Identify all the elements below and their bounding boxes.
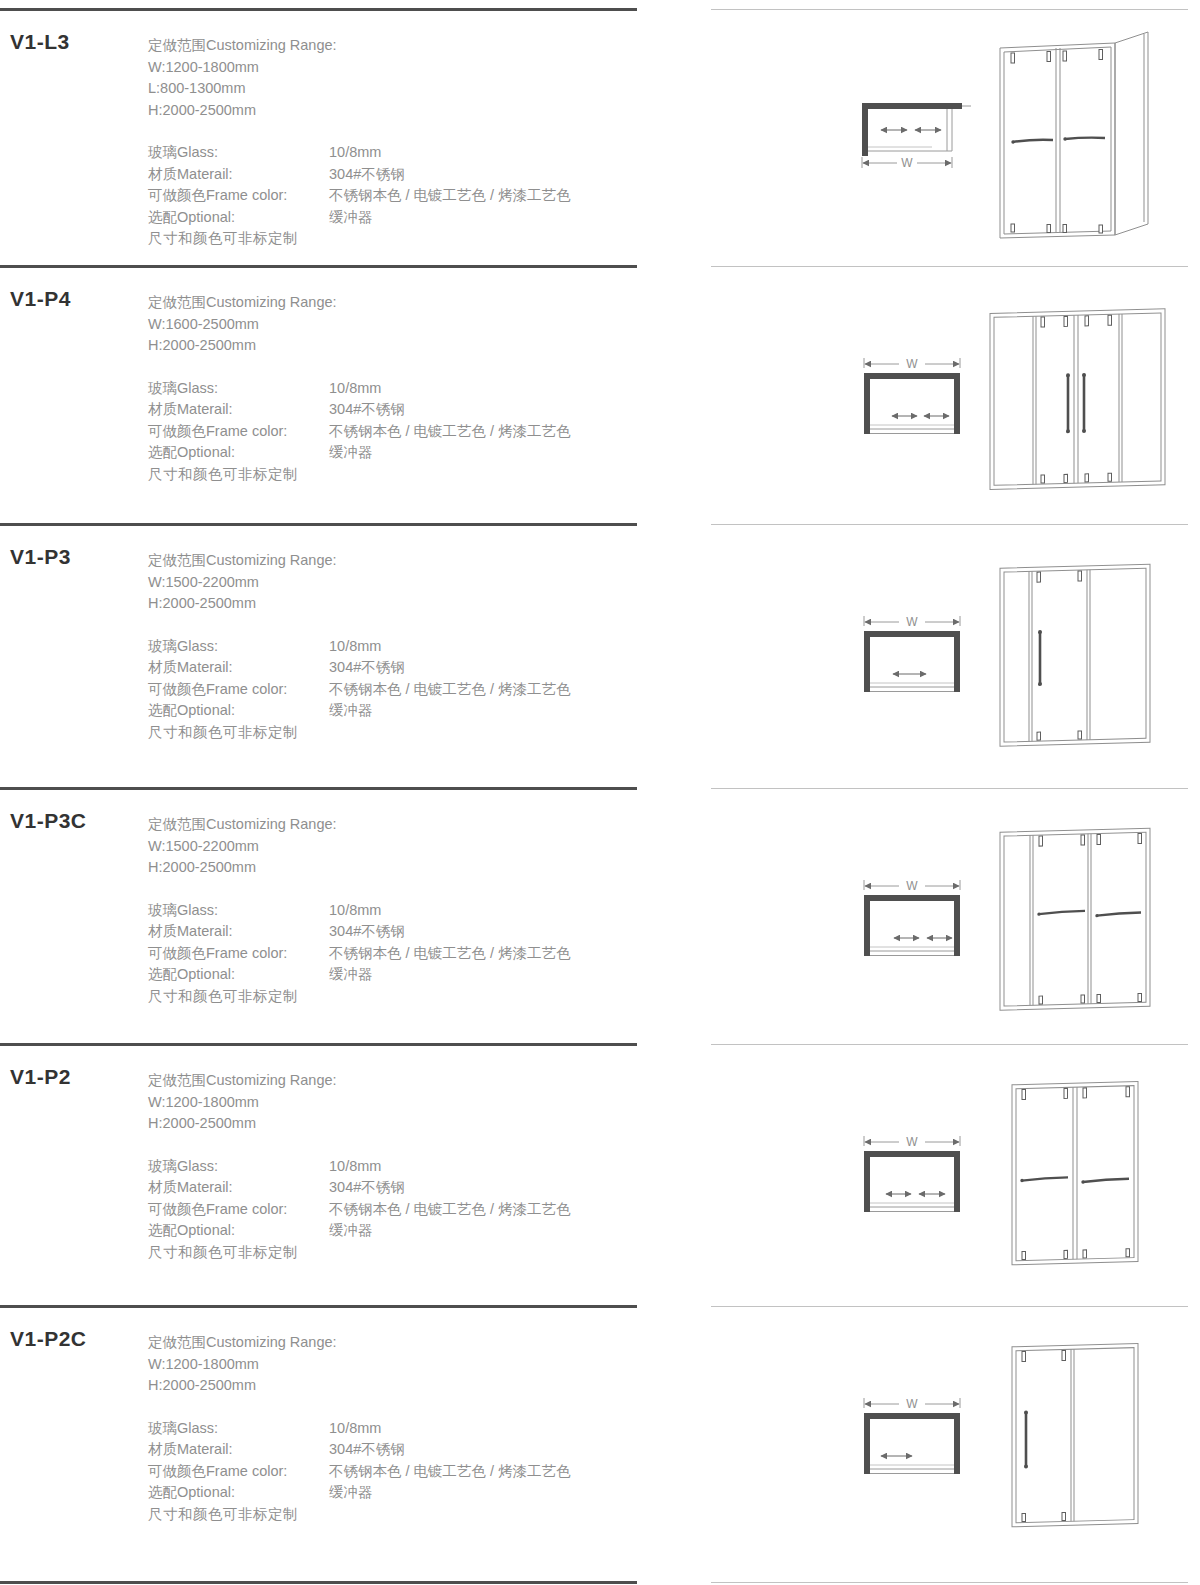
product-section-v1-l3: V1-L3 定做范围Customizing Range: W:1200-1800…: [0, 8, 1200, 265]
technical-drawing: W: [700, 265, 1200, 522]
technical-drawing: W: [700, 8, 1200, 265]
range-line: H:2000-2500mm: [148, 100, 571, 122]
plan-width-label: W: [901, 156, 913, 170]
spec-label: 材质Materail:: [148, 657, 329, 679]
product-section-v1-p3: V1-P3 定做范围Customizing Range: W:1500-2200…: [0, 523, 1200, 787]
spec-label: 可做颜色Frame color:: [148, 943, 329, 965]
range-title: 定做范围Customizing Range:: [148, 550, 571, 572]
spec-value: 缓冲器: [329, 1482, 373, 1504]
range-line: H:2000-2500mm: [148, 335, 571, 357]
door-handles: [1038, 630, 1042, 686]
spec-value: 缓冲器: [329, 1220, 373, 1242]
spec-row: 选配Optional:缓冲器: [148, 1220, 571, 1242]
section-divider-left: [0, 8, 637, 11]
range-title: 定做范围Customizing Range:: [148, 35, 571, 57]
range-line: W:1500-2200mm: [148, 836, 571, 858]
custom-note: 尺寸和颜色可非标定制: [148, 1504, 571, 1526]
front-view: [1000, 564, 1150, 746]
spec-row: 可做颜色Frame color:不锈钢本色 / 电镀工艺色 / 烤漆工艺色: [148, 943, 571, 965]
model-name: V1-P2C: [10, 1327, 87, 1351]
page-bottom-divider: [0, 1581, 1200, 1585]
model-name: V1-P3C: [10, 809, 87, 833]
spec-value: 10/8mm: [329, 1156, 381, 1178]
spec-row: 可做颜色Frame color:不锈钢本色 / 电镀工艺色 / 烤漆工艺色: [148, 1199, 571, 1221]
spec-row: 玻璃Glass:10/8mm: [148, 1156, 571, 1178]
spec-value: 缓冲器: [329, 700, 373, 722]
spec-list: 玻璃Glass:10/8mm 材质Materail:304#不锈钢 可做颜色Fr…: [148, 1156, 571, 1264]
plan-width-label: W: [906, 1135, 918, 1149]
plan-view: W: [864, 615, 960, 692]
spec-label: 玻璃Glass:: [148, 378, 329, 400]
spec-row: 材质Materail:304#不锈钢: [148, 657, 571, 679]
spec-row: 材质Materail:304#不锈钢: [148, 921, 571, 943]
range-title: 定做范围Customizing Range:: [148, 1070, 571, 1092]
spec-value: 10/8mm: [329, 142, 381, 164]
range-line: H:2000-2500mm: [148, 857, 571, 879]
model-name: V1-P4: [10, 287, 71, 311]
spec-label: 材质Materail:: [148, 1177, 329, 1199]
spec-label: 玻璃Glass:: [148, 636, 329, 658]
spec-row: 玻璃Glass:10/8mm: [148, 1418, 571, 1440]
range-title: 定做范围Customizing Range:: [148, 292, 571, 314]
front-view: [1000, 828, 1150, 1010]
drawing-v1-p2c: W: [700, 1305, 1200, 1562]
range-line: H:2000-2500mm: [148, 593, 571, 615]
spec-value: 缓冲器: [329, 207, 373, 229]
drawing-v1-p3: W: [700, 523, 1200, 780]
range-line: H:2000-2500mm: [148, 1375, 571, 1397]
technical-drawing: W: [700, 1043, 1200, 1300]
spec-label: 可做颜色Frame color:: [148, 185, 329, 207]
spec-list: 玻璃Glass:10/8mm 材质Materail:304#不锈钢 可做颜色Fr…: [148, 900, 571, 1008]
front-view: [1012, 1082, 1138, 1265]
spec-value: 304#不锈钢: [329, 399, 405, 421]
spec-row: 材质Materail:304#不锈钢: [148, 399, 571, 421]
spec-label: 可做颜色Frame color:: [148, 421, 329, 443]
spec-text-block: 定做范围Customizing Range: W:1500-2200mm H:2…: [148, 814, 571, 1007]
spec-row: 选配Optional:缓冲器: [148, 1482, 571, 1504]
door-handles: [1011, 137, 1105, 143]
spec-value: 不锈钢本色 / 电镀工艺色 / 烤漆工艺色: [329, 421, 571, 443]
spec-row: 材质Materail:304#不锈钢: [148, 1177, 571, 1199]
spec-value: 10/8mm: [329, 378, 381, 400]
spec-row: 玻璃Glass:10/8mm: [148, 142, 571, 164]
door-handles: [1020, 1176, 1129, 1186]
spec-label: 材质Materail:: [148, 164, 329, 186]
range-line: W:1200-1800mm: [148, 1092, 571, 1114]
model-name: V1-L3: [10, 30, 70, 54]
spec-row: 选配Optional:缓冲器: [148, 700, 571, 722]
spec-row: 玻璃Glass:10/8mm: [148, 900, 571, 922]
drawing-v1-p2: W: [700, 1043, 1200, 1300]
technical-drawing: W: [700, 523, 1200, 780]
section-divider-left: [0, 1043, 637, 1046]
drawing-v1-p4: W: [700, 265, 1200, 522]
spec-row: 可做颜色Frame color:不锈钢本色 / 电镀工艺色 / 烤漆工艺色: [148, 1461, 571, 1483]
spec-row: 材质Materail:304#不锈钢: [148, 164, 571, 186]
spec-value: 304#不锈钢: [329, 657, 405, 679]
plan-width-label: W: [906, 357, 918, 371]
range-line: W:1500-2200mm: [148, 572, 571, 594]
spec-row: 选配Optional:缓冲器: [148, 207, 571, 229]
roller-hooks: [1037, 571, 1082, 582]
front-view: [1000, 32, 1148, 238]
product-section-v1-p2c: V1-P2C 定做范围Customizing Range: W:1200-180…: [0, 1305, 1200, 1581]
spec-label: 玻璃Glass:: [148, 900, 329, 922]
range-line: L:800-1300mm: [148, 78, 571, 100]
spec-row: 可做颜色Frame color:不锈钢本色 / 电镀工艺色 / 烤漆工艺色: [148, 679, 571, 701]
plan-width-label: W: [906, 615, 918, 629]
technical-drawing: W: [700, 787, 1200, 1044]
range-line: W:1200-1800mm: [148, 57, 571, 79]
spec-label: 可做颜色Frame color:: [148, 1461, 329, 1483]
product-section-v1-p2: V1-P2 定做范围Customizing Range: W:1200-1800…: [0, 1043, 1200, 1305]
spec-value: 不锈钢本色 / 电镀工艺色 / 烤漆工艺色: [329, 1199, 571, 1221]
spec-label: 材质Materail:: [148, 921, 329, 943]
spec-label: 可做颜色Frame color:: [148, 1199, 329, 1221]
spec-row: 材质Materail:304#不锈钢: [148, 1439, 571, 1461]
spec-value: 10/8mm: [329, 900, 381, 922]
spec-value: 不锈钢本色 / 电镀工艺色 / 烤漆工艺色: [329, 679, 571, 701]
custom-note: 尺寸和颜色可非标定制: [148, 228, 571, 250]
range-line: W:1200-1800mm: [148, 1354, 571, 1376]
spec-text-block: 定做范围Customizing Range: W:1200-1800mm H:2…: [148, 1070, 571, 1263]
spec-label: 选配Optional:: [148, 964, 329, 986]
drawing-v1-p3c: W: [700, 787, 1200, 1044]
spec-row: 选配Optional:缓冲器: [148, 964, 571, 986]
spec-value: 缓冲器: [329, 964, 373, 986]
spec-value: 不锈钢本色 / 电镀工艺色 / 烤漆工艺色: [329, 943, 571, 965]
spec-label: 材质Materail:: [148, 1439, 329, 1461]
plan-width-label: W: [906, 879, 918, 893]
spec-label: 材质Materail:: [148, 399, 329, 421]
custom-note: 尺寸和颜色可非标定制: [148, 1242, 571, 1264]
bottom-guides: [1041, 473, 1112, 483]
spec-text-block: 定做范围Customizing Range: W:1500-2200mm H:2…: [148, 550, 571, 743]
spec-label: 可做颜色Frame color:: [148, 679, 329, 701]
spec-row: 可做颜色Frame color:不锈钢本色 / 电镀工艺色 / 烤漆工艺色: [148, 421, 571, 443]
spec-value: 304#不锈钢: [329, 1439, 405, 1461]
bottom-guides: [1022, 1512, 1066, 1521]
spec-value: 304#不锈钢: [329, 164, 405, 186]
spec-row: 玻璃Glass:10/8mm: [148, 636, 571, 658]
spec-label: 选配Optional:: [148, 1220, 329, 1242]
range-line: W:1600-2500mm: [148, 314, 571, 336]
spec-value: 不锈钢本色 / 电镀工艺色 / 烤漆工艺色: [329, 1461, 571, 1483]
door-handles: [1024, 1410, 1028, 1468]
spec-label: 玻璃Glass:: [148, 1156, 329, 1178]
spec-value: 304#不锈钢: [329, 1177, 405, 1199]
spec-value: 缓冲器: [329, 442, 373, 464]
spec-label: 选配Optional:: [148, 207, 329, 229]
product-section-v1-p4: V1-P4 定做范围Customizing Range: W:1600-2500…: [0, 265, 1200, 523]
range-title: 定做范围Customizing Range:: [148, 814, 571, 836]
spec-list: 玻璃Glass:10/8mm 材质Materail:304#不锈钢 可做颜色Fr…: [148, 142, 571, 250]
section-divider-left: [0, 523, 637, 526]
spec-value: 304#不锈钢: [329, 921, 405, 943]
custom-note: 尺寸和颜色可非标定制: [148, 722, 571, 744]
section-divider-left: [0, 1305, 637, 1308]
plan-view: W: [864, 357, 960, 434]
plan-view: W: [864, 1397, 960, 1474]
roller-hooks: [1041, 315, 1112, 327]
spec-text-block: 定做范围Customizing Range: W:1200-1800mm H:2…: [148, 1332, 571, 1525]
spec-row: 玻璃Glass:10/8mm: [148, 378, 571, 400]
spec-label: 玻璃Glass:: [148, 1418, 329, 1440]
drawing-v1-l3: W: [700, 8, 1200, 265]
range-title: 定做范围Customizing Range:: [148, 1332, 571, 1354]
spec-label: 选配Optional:: [148, 1482, 329, 1504]
spec-value: 不锈钢本色 / 电镀工艺色 / 烤漆工艺色: [329, 185, 571, 207]
roller-hooks: [1039, 833, 1142, 846]
spec-list: 玻璃Glass:10/8mm 材质Materail:304#不锈钢 可做颜色Fr…: [148, 636, 571, 744]
spec-value: 10/8mm: [329, 636, 381, 658]
bottom-divider-left: [0, 1581, 637, 1584]
plan-width-label: W: [906, 1397, 918, 1411]
bottom-divider-right: [711, 1582, 1188, 1583]
model-name: V1-P2: [10, 1065, 71, 1089]
spec-label: 玻璃Glass:: [148, 142, 329, 164]
spec-list: 玻璃Glass:10/8mm 材质Materail:304#不锈钢 可做颜色Fr…: [148, 1418, 571, 1526]
bottom-guides: [1037, 731, 1082, 740]
product-section-v1-p3c: V1-P3C 定做范围Customizing Range: W:1500-220…: [0, 787, 1200, 1043]
front-view: [1012, 1344, 1138, 1527]
spec-row: 选配Optional:缓冲器: [148, 442, 571, 464]
spec-value: 10/8mm: [329, 1418, 381, 1440]
plan-view: W: [864, 879, 960, 956]
spec-label: 选配Optional:: [148, 442, 329, 464]
spec-text-block: 定做范围Customizing Range: W:1600-2500mm H:2…: [148, 292, 571, 485]
door-handles: [1066, 373, 1086, 434]
technical-drawing: W: [700, 1305, 1200, 1562]
section-divider-left: [0, 265, 637, 268]
custom-note: 尺寸和颜色可非标定制: [148, 464, 571, 486]
section-divider-left: [0, 787, 637, 790]
spec-list: 玻璃Glass:10/8mm 材质Materail:304#不锈钢 可做颜色Fr…: [148, 378, 571, 486]
model-name: V1-P3: [10, 545, 71, 569]
roller-hooks: [1022, 1087, 1130, 1100]
spec-text-block: 定做范围Customizing Range: W:1200-1800mm L:8…: [148, 35, 571, 250]
spec-row: 可做颜色Frame color:不锈钢本色 / 电镀工艺色 / 烤漆工艺色: [148, 185, 571, 207]
plan-view: W: [864, 1135, 960, 1212]
plan-view: W: [862, 103, 971, 170]
spec-label: 选配Optional:: [148, 700, 329, 722]
door-handles: [1037, 909, 1141, 918]
range-line: H:2000-2500mm: [148, 1113, 571, 1135]
roller-hooks: [1022, 1350, 1066, 1361]
custom-note: 尺寸和颜色可非标定制: [148, 986, 571, 1008]
front-view: [990, 309, 1165, 490]
